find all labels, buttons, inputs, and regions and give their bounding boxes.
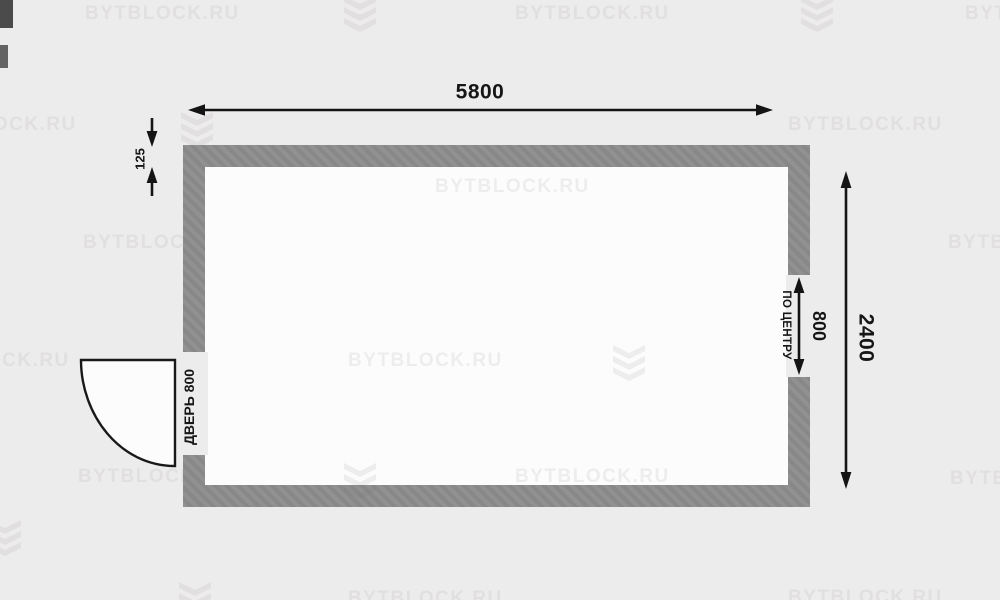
height-dimension-label: 2400 xyxy=(856,314,877,363)
dimension-arrow-800 xyxy=(794,277,805,375)
door-label: ДВЕРЬ 800 xyxy=(182,369,196,445)
wall-thickness-label: 125 xyxy=(134,148,147,170)
dimension-arrow-125 xyxy=(147,118,158,196)
floor-plan-canvas: BYTBLOCK.RU BYTBLOCK.RU BYTBLOCK.RU BYTB… xyxy=(0,0,1000,600)
window-width-label: 800 xyxy=(810,311,828,341)
dimension-arrow-5800 xyxy=(188,104,773,116)
width-dimension-label: 5800 xyxy=(456,82,505,103)
window-centered-note: ПО ЦЕНТРУ xyxy=(779,290,791,359)
edge-artifact xyxy=(0,45,8,68)
edge-artifact xyxy=(0,0,13,28)
door-swing-arc xyxy=(81,360,175,466)
dimension-arrow-2400 xyxy=(841,171,852,489)
